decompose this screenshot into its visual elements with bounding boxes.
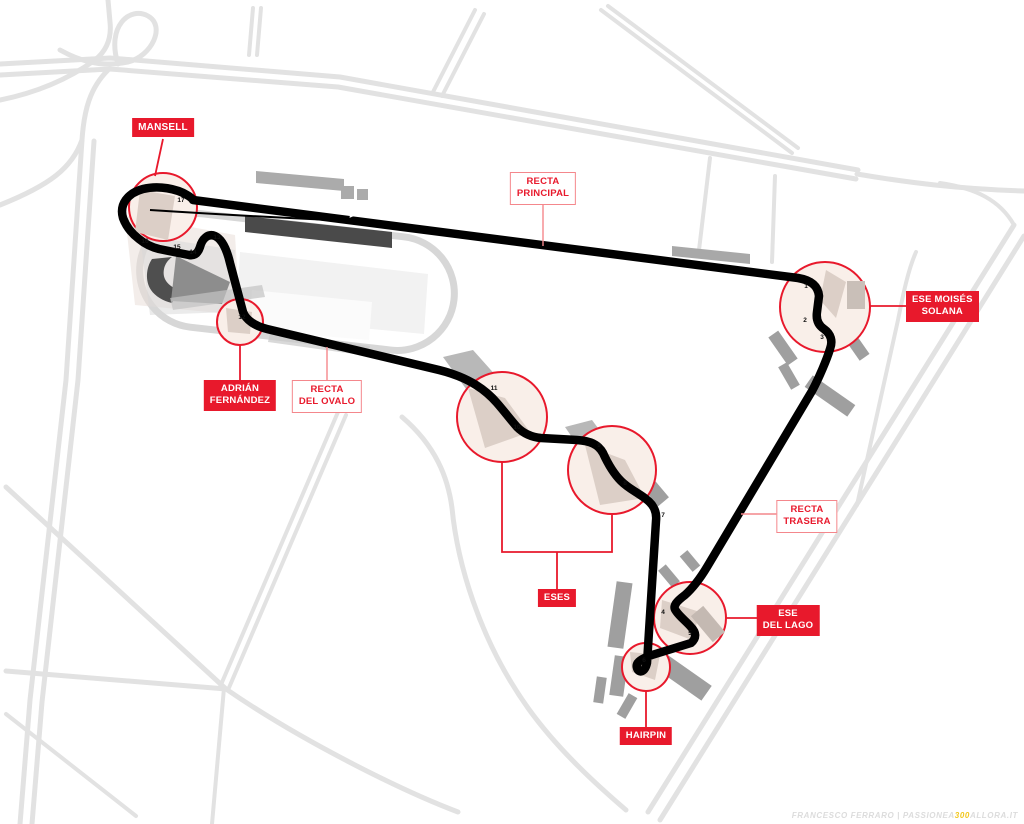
circuit-map-canvas: 1234567891011121314151617 MANSELL RECTA … <box>0 0 1024 824</box>
turn-number-13: 13 <box>213 234 221 241</box>
road-line <box>442 14 484 96</box>
grandstand <box>341 186 354 199</box>
turn-number-4: 4 <box>661 609 665 616</box>
turn-number-17: 17 <box>177 197 185 204</box>
grandstand <box>357 189 368 200</box>
turn-number-3: 3 <box>820 334 824 341</box>
turn-number-15: 15 <box>173 244 181 251</box>
label-recta-trasera: RECTA TRASERA <box>776 500 837 533</box>
road-line <box>6 487 458 812</box>
turn-number-5: 5 <box>688 630 692 637</box>
road-line <box>0 58 858 170</box>
label-ese-del-lago: ESE DEL LAGO <box>757 605 820 636</box>
road-line <box>608 6 798 148</box>
road-line <box>212 688 224 824</box>
road-line <box>20 140 82 824</box>
road-line <box>228 415 346 690</box>
grandstand <box>680 550 701 572</box>
label-mansell: MANSELL <box>132 118 194 137</box>
turn-number-6: 6 <box>642 657 646 664</box>
label-adrian-fernandez: ADRIÁN FERNÁNDEZ <box>204 380 276 411</box>
turn-number-8: 8 <box>623 480 627 487</box>
watermark-highlight: 300 <box>955 811 970 820</box>
road-line <box>249 8 253 55</box>
turn-number-10: 10 <box>513 424 521 431</box>
grandstand <box>617 693 638 719</box>
road-line <box>433 10 475 92</box>
turn-number-9: 9 <box>597 442 601 449</box>
road-line <box>601 10 792 153</box>
turn-number-2: 2 <box>803 317 807 324</box>
runoff-shade <box>847 281 865 309</box>
road-line <box>6 671 226 689</box>
road-line <box>0 140 82 205</box>
label-ese-moises-solana: ESE MOISÉS SOLANA <box>906 291 979 322</box>
grandstand <box>256 171 344 191</box>
watermark-prefix: FRANCESCO FERRARO | PASSIONEA <box>792 811 955 820</box>
runoff-shade <box>135 190 175 240</box>
turn-number-7: 7 <box>661 512 665 519</box>
watermark-credit: FRANCESCO FERRARO | PASSIONEA300ALLORA.I… <box>792 811 1018 820</box>
label-recta-del-ovalo: RECTA DEL OVALO <box>292 380 362 413</box>
watermark-suffix: ALLORA.IT <box>970 811 1018 820</box>
road-line <box>82 70 108 140</box>
road-line <box>0 69 856 179</box>
road-line <box>699 158 710 250</box>
grandstand <box>593 676 607 703</box>
turn-number-14: 14 <box>189 249 197 256</box>
turn-number-16: 16 <box>141 238 149 245</box>
turn-number-11: 11 <box>491 385 498 392</box>
road-line <box>32 141 94 824</box>
label-eses: ESES <box>538 589 576 607</box>
turn-number-1: 1 <box>804 283 808 290</box>
connector-mansell <box>155 139 163 176</box>
turn-number-12: 12 <box>238 314 246 321</box>
grandstand <box>607 581 632 649</box>
grandstand <box>778 362 800 390</box>
road-line <box>772 176 775 262</box>
road-line <box>220 412 338 687</box>
label-hairpin: HAIRPIN <box>620 727 672 745</box>
label-recta-principal: RECTA PRINCIPAL <box>510 172 576 205</box>
road-line <box>257 8 261 55</box>
